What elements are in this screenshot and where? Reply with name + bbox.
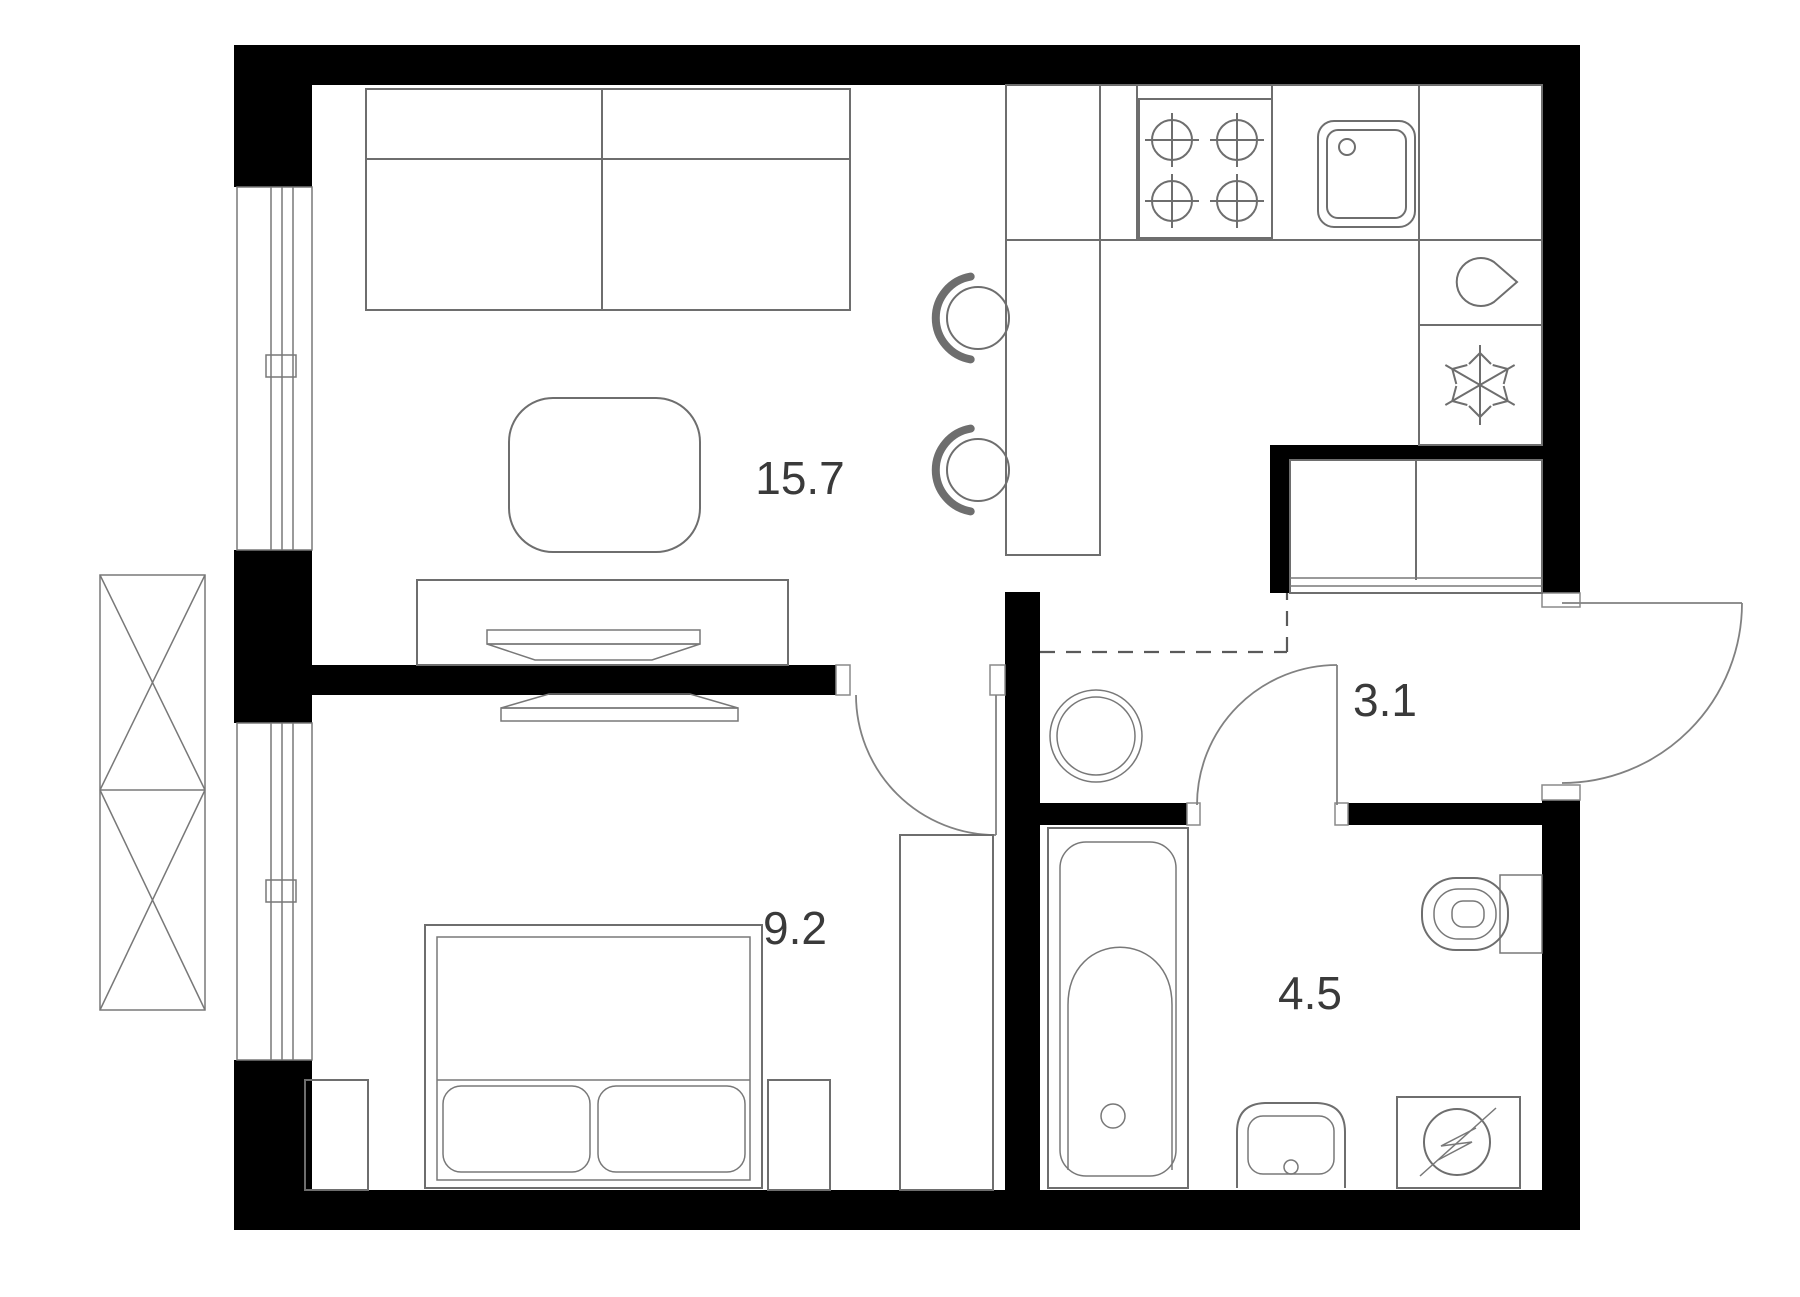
hallway-closet	[1290, 460, 1542, 593]
bedroom-door	[856, 695, 996, 835]
water-drop-icon	[1457, 258, 1517, 306]
exterior-walls	[234, 45, 1580, 1230]
tv-console	[417, 580, 788, 665]
zone-boundary-dashed	[1040, 593, 1287, 652]
bedroom-tv-icon	[501, 694, 738, 721]
washbasin-icon	[1237, 1103, 1345, 1188]
bed	[425, 925, 762, 1188]
room-label-bathroom: 4.5	[1278, 967, 1342, 1019]
water-heater-icon	[1050, 690, 1142, 782]
bar-counter	[1006, 240, 1100, 555]
kitchen-sink-icon	[1318, 121, 1415, 227]
room-label-bedroom: 9.2	[763, 902, 827, 954]
room-label-living-kitchen: 15.7	[755, 452, 845, 504]
bathtub-icon	[1048, 828, 1188, 1188]
floor-plan-svg: 15.7 9.2 3.1 4.5	[0, 0, 1800, 1297]
floor-plan-canvas: 15.7 9.2 3.1 4.5	[0, 0, 1800, 1297]
room-label-hallway: 3.1	[1353, 674, 1417, 726]
washing-machine-icon	[1397, 1097, 1520, 1188]
bedroom-wardrobe	[900, 835, 993, 1190]
nightstand	[305, 1080, 368, 1190]
pillow	[443, 1086, 590, 1172]
bar-stool	[936, 429, 1009, 512]
door-jambs	[836, 593, 1580, 825]
ac-basket-icon	[100, 575, 205, 1010]
toilet-icon	[1422, 875, 1542, 953]
coffee-table	[509, 398, 700, 552]
bathroom-door	[1197, 665, 1337, 805]
bedroom-window	[237, 723, 312, 1060]
stove-burners-icon	[1139, 99, 1272, 238]
living-room-window	[237, 187, 312, 550]
pillow	[598, 1086, 745, 1172]
snowflake-fridge-icon	[1440, 345, 1520, 425]
nightstand	[768, 1080, 830, 1190]
sofa	[366, 89, 850, 310]
living-room-tv-icon	[487, 630, 700, 660]
bar-stool	[936, 277, 1009, 360]
entrance-door	[1562, 603, 1742, 783]
